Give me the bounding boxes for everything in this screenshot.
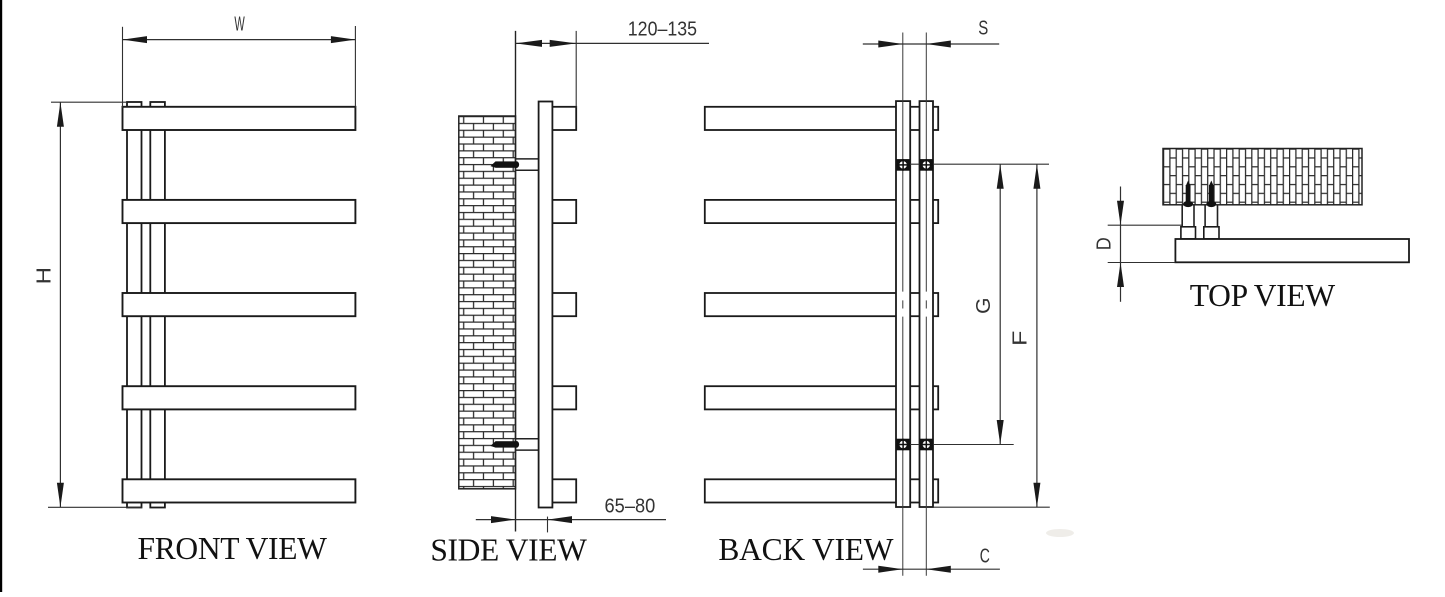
svg-text:TOP VIEW: TOP VIEW bbox=[1190, 278, 1336, 313]
svg-text:W: W bbox=[234, 13, 245, 35]
svg-text:S: S bbox=[978, 16, 988, 39]
svg-text:F: F bbox=[1009, 331, 1031, 346]
svg-text:SIDE VIEW: SIDE VIEW bbox=[430, 532, 587, 567]
svg-text:C: C bbox=[980, 544, 990, 567]
svg-text:FRONT VIEW: FRONT VIEW bbox=[138, 531, 328, 566]
svg-text:H: H bbox=[32, 267, 55, 284]
svg-text:BACK VIEW: BACK VIEW bbox=[718, 532, 893, 567]
svg-text:G: G bbox=[973, 298, 995, 314]
svg-text:65–80: 65–80 bbox=[605, 495, 656, 517]
svg-text:D: D bbox=[1094, 237, 1116, 250]
svg-text:120–135: 120–135 bbox=[628, 18, 697, 40]
